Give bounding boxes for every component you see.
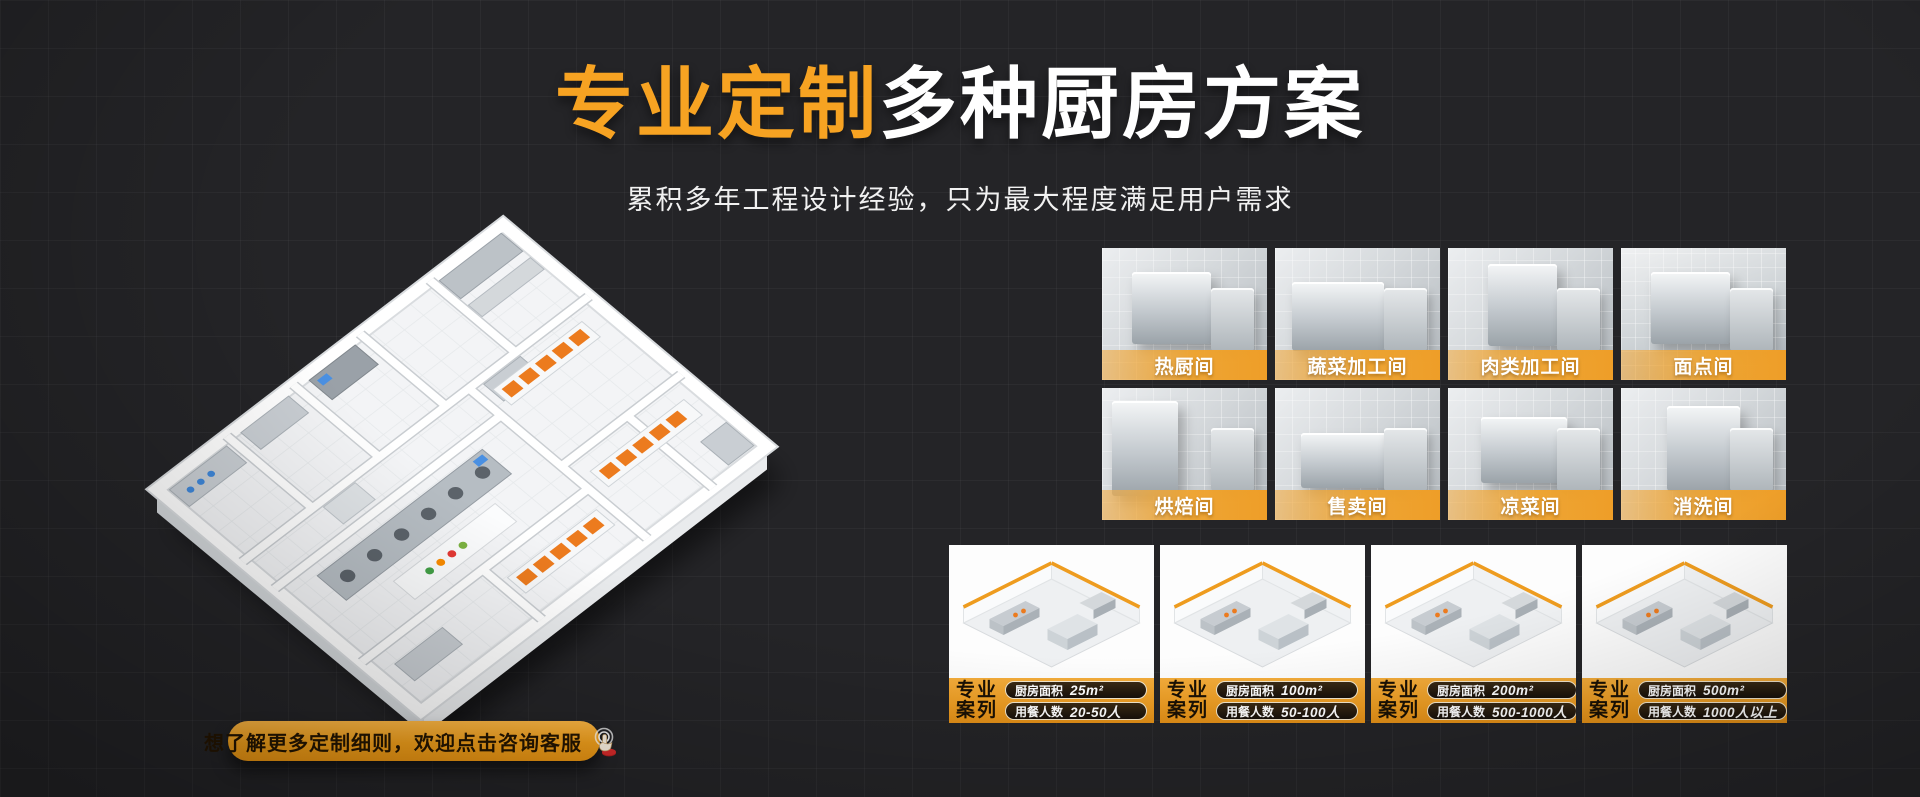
room-card-dishwashing[interactable]: 消洗间 [1621,388,1786,520]
case-footer: 专业案列 厨房面积500m² 用餐人数1000人以上 [1582,678,1787,723]
diners-pill: 用餐人数1000人以上 [1638,702,1787,720]
case-footer: 专业案列 厨房面积200m² 用餐人数500-1000人 [1371,678,1576,723]
room-grid: 热厨间 蔬菜加工间 肉类加工间 面点间 烘焙间 售卖间 凉菜间 消洗间 [1102,248,1788,520]
room-label: 售卖间 [1275,490,1440,520]
case-render [1582,545,1787,678]
room-card-baking[interactable]: 烘焙间 [1102,388,1267,520]
room-label: 凉菜间 [1448,490,1613,520]
room-label: 烘焙间 [1102,490,1267,520]
case-card-25m2[interactable]: 专业案列 厨房面积25m² 用餐人数20-50人 [949,545,1154,723]
diners-pill: 用餐人数50-100人 [1216,702,1358,720]
kitchen-area-pill: 厨房面积500m² [1638,681,1787,699]
kitchen-area-pill: 厨房面积200m² [1427,681,1576,699]
room-label: 热厨间 [1102,350,1267,380]
case-render [1371,545,1576,678]
kitchen-floorplan-illustration [120,190,800,755]
title-rest: 多种厨房方案 [879,60,1365,148]
click-hand-icon [590,726,624,760]
room-card-selling[interactable]: 售卖间 [1275,388,1440,520]
title-highlight: 专业定制 [555,60,879,148]
room-label: 消洗间 [1621,490,1786,520]
room-card-cold-dishes[interactable]: 凉菜间 [1448,388,1613,520]
kitchen-area-pill: 厨房面积25m² [1005,681,1147,699]
case-badge: 专业案列 [1589,681,1631,720]
diners-pill: 用餐人数500-1000人 [1427,702,1576,720]
consult-button-label: 想了解更多定制细则，欢迎点击咨询客服 [204,727,582,756]
kitchen-plans-banner: 专业定制多种厨房方案 累积多年工程设计经验，只为最大程度满足用户需求 [0,0,1920,797]
case-render [949,545,1154,678]
room-card-pastry[interactable]: 面点间 [1621,248,1786,380]
case-footer: 专业案列 厨房面积100m² 用餐人数50-100人 [1160,678,1365,723]
case-badge: 专业案列 [956,681,998,720]
case-row: 专业案列 厨房面积25m² 用餐人数20-50人 专业案列 厨房面积100m² … [949,545,1788,723]
case-footer: 专业案列 厨房面积25m² 用餐人数20-50人 [949,678,1154,723]
room-label: 蔬菜加工间 [1275,350,1440,380]
case-badge: 专业案列 [1167,681,1209,720]
kitchen-area-pill: 厨房面积100m² [1216,681,1358,699]
room-card-hot-kitchen[interactable]: 热厨间 [1102,248,1267,380]
room-label: 面点间 [1621,350,1786,380]
page-title: 专业定制多种厨房方案 [0,42,1920,154]
case-card-500m2[interactable]: 专业案列 厨房面积500m² 用餐人数1000人以上 [1582,545,1787,723]
room-label: 肉类加工间 [1448,350,1613,380]
room-card-meat-processing[interactable]: 肉类加工间 [1448,248,1613,380]
case-badge: 专业案列 [1378,681,1420,720]
case-render [1160,545,1365,678]
diners-pill: 用餐人数20-50人 [1005,702,1147,720]
room-card-vegetable-processing[interactable]: 蔬菜加工间 [1275,248,1440,380]
case-card-100m2[interactable]: 专业案列 厨房面积100m² 用餐人数50-100人 [1160,545,1365,723]
case-card-200m2[interactable]: 专业案列 厨房面积200m² 用餐人数500-1000人 [1371,545,1576,723]
floorplan-svg [120,190,800,755]
consult-button[interactable]: 想了解更多定制细则，欢迎点击咨询客服 [228,721,600,761]
